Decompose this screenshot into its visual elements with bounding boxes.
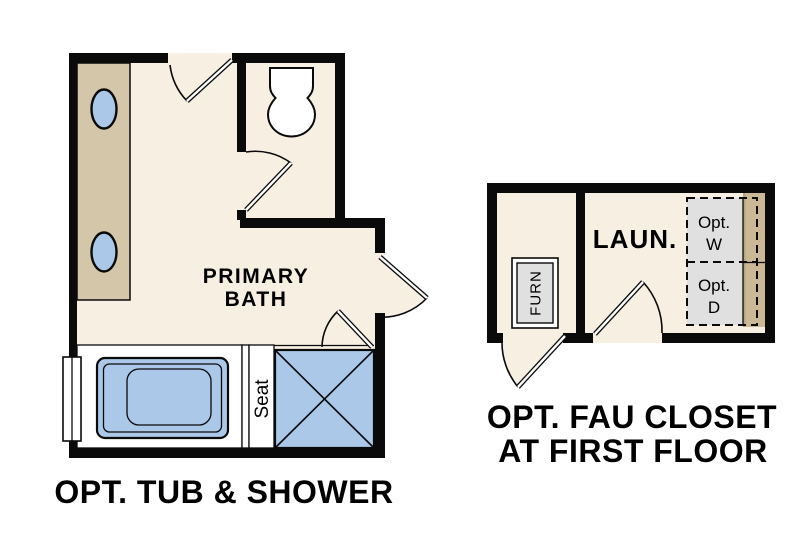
- laundry-room-label: LAUN.: [593, 224, 677, 254]
- laundry-wall-right: [765, 183, 775, 343]
- tub-shower-divider: [242, 345, 249, 448]
- wall-right-upper: [335, 53, 345, 228]
- sink-top: [92, 90, 117, 129]
- window: [63, 357, 81, 441]
- seat-label: Seat: [252, 379, 273, 419]
- floorplan-svg: PRIMARY BATH Seat: [0, 0, 810, 536]
- laundry-wall-bottom-left: [487, 333, 503, 343]
- dryer-label-line1: Opt.: [698, 276, 730, 295]
- dryer-label-line2: D: [708, 298, 720, 317]
- laundry-wall-left: [487, 183, 497, 343]
- laundry-wall-top: [487, 183, 775, 193]
- bath-room-label-line2: BATH: [225, 288, 288, 311]
- toilet: [268, 68, 315, 137]
- wall-bottom: [69, 448, 385, 458]
- bath-top-door-opening: [168, 53, 232, 63]
- washer-label-line2: W: [706, 235, 722, 254]
- closet-caption-line1: OPT. FAU CLOSET: [487, 399, 777, 435]
- bath-caption: OPT. TUB & SHOWER: [54, 474, 393, 510]
- laundry-counter: [743, 193, 765, 327]
- wall-wc-stub: [237, 210, 246, 220]
- wall-entry-stub: [375, 228, 385, 253]
- sink-bottom: [92, 233, 117, 272]
- wall-right-lower: [375, 313, 385, 458]
- entry-door-swing: [378, 257, 427, 317]
- floorplan-canvas: PRIMARY BATH Seat: [0, 0, 810, 536]
- bathtub: [97, 358, 228, 438]
- laundry-wall-bottom-mid: [563, 333, 593, 343]
- washer-label-line1: Opt.: [698, 213, 730, 232]
- laun-door-opening: [593, 333, 662, 343]
- fau-closet-plan: LAUN. FURN Opt. W Opt. D: [487, 183, 775, 387]
- laundry-wall-divider: [576, 193, 585, 333]
- primary-bath-plan: PRIMARY BATH Seat: [63, 53, 427, 458]
- wall-top-right: [232, 53, 345, 63]
- furnace-label: FURN: [527, 270, 544, 316]
- bath-room-label-line1: PRIMARY: [203, 265, 310, 288]
- laundry-wall-bottom-right: [662, 333, 775, 343]
- closet-caption-line2: AT FIRST FLOOR: [498, 433, 767, 469]
- wall-top-left: [69, 53, 168, 63]
- wall-step: [240, 218, 385, 228]
- wall-wc-upper: [237, 63, 246, 152]
